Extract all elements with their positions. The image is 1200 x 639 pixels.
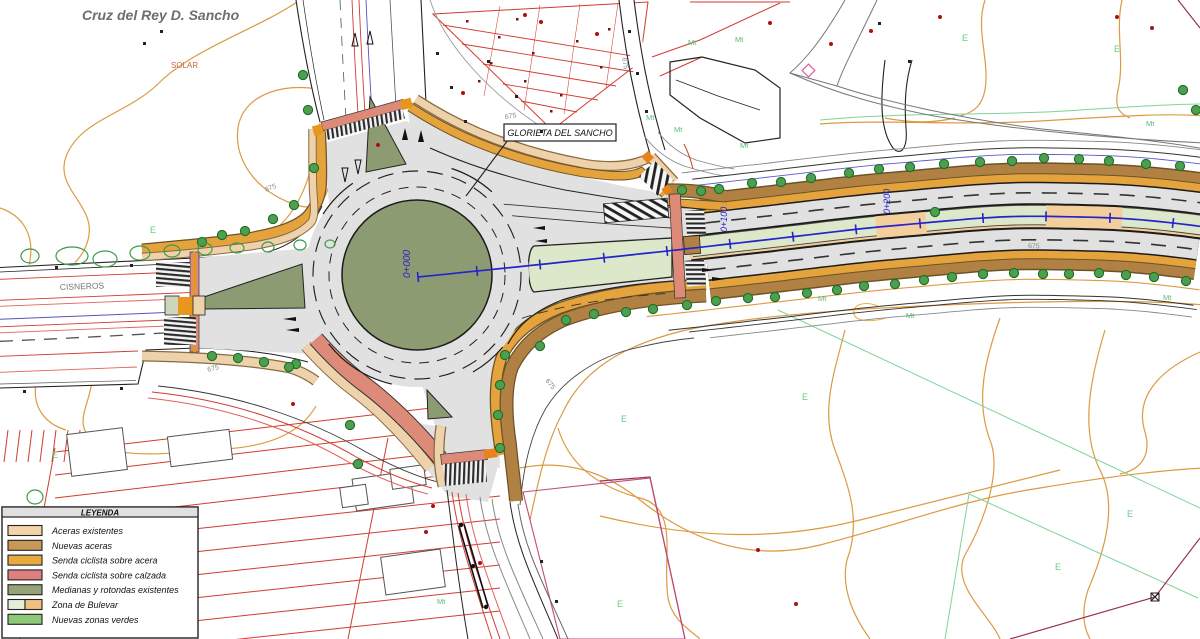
svg-text:E: E <box>962 33 968 43</box>
svg-text:GLORIETA DEL SANCHO: GLORIETA DEL SANCHO <box>507 128 612 138</box>
svg-text:Mt: Mt <box>674 125 683 134</box>
svg-text:SOLAR: SOLAR <box>171 61 198 70</box>
svg-text:E: E <box>150 225 156 235</box>
svg-text:Medianas y rotondas existentes: Medianas y rotondas existentes <box>52 585 179 595</box>
svg-text:Senda ciclista sobre acera: Senda ciclista sobre acera <box>52 556 158 566</box>
svg-text:Mt: Mt <box>1146 119 1155 128</box>
svg-text:Mt: Mt <box>437 597 446 606</box>
svg-text:E: E <box>1055 562 1061 572</box>
svg-text:Mt: Mt <box>1163 293 1172 302</box>
svg-text:Mt: Mt <box>818 294 827 303</box>
svg-text:Mt: Mt <box>735 35 744 44</box>
svg-text:E: E <box>621 414 627 424</box>
svg-text:Mt: Mt <box>688 38 697 47</box>
svg-text:0+200: 0+200 <box>882 189 892 214</box>
svg-text:CISNEROS: CISNEROS <box>60 280 105 292</box>
svg-text:Mt: Mt <box>740 141 749 150</box>
svg-text:Nuevas zonas verdes: Nuevas zonas verdes <box>52 615 139 625</box>
svg-text:LEYENDA: LEYENDA <box>81 509 119 518</box>
svg-text:Nuevas aceras: Nuevas aceras <box>52 541 113 551</box>
svg-text:Senda ciclista sobre calzada: Senda ciclista sobre calzada <box>52 570 166 580</box>
svg-text:E: E <box>1114 44 1120 54</box>
svg-text:Mt: Mt <box>646 113 655 122</box>
svg-text:675: 675 <box>1028 243 1040 250</box>
svg-text:0+000: 0+000 <box>402 249 413 278</box>
svg-text:Cruz del Rey D. Sancho: Cruz del Rey D. Sancho <box>82 7 240 23</box>
svg-text:0+100: 0+100 <box>719 207 729 232</box>
svg-text:E: E <box>52 450 58 460</box>
svg-text:Aceras existentes: Aceras existentes <box>51 526 124 536</box>
svg-text:Zona de Bulevar: Zona de Bulevar <box>51 600 119 610</box>
svg-text:E: E <box>617 599 623 609</box>
svg-text:E: E <box>1127 509 1133 519</box>
svg-text:E: E <box>802 392 808 402</box>
svg-text:Mt: Mt <box>906 311 915 320</box>
